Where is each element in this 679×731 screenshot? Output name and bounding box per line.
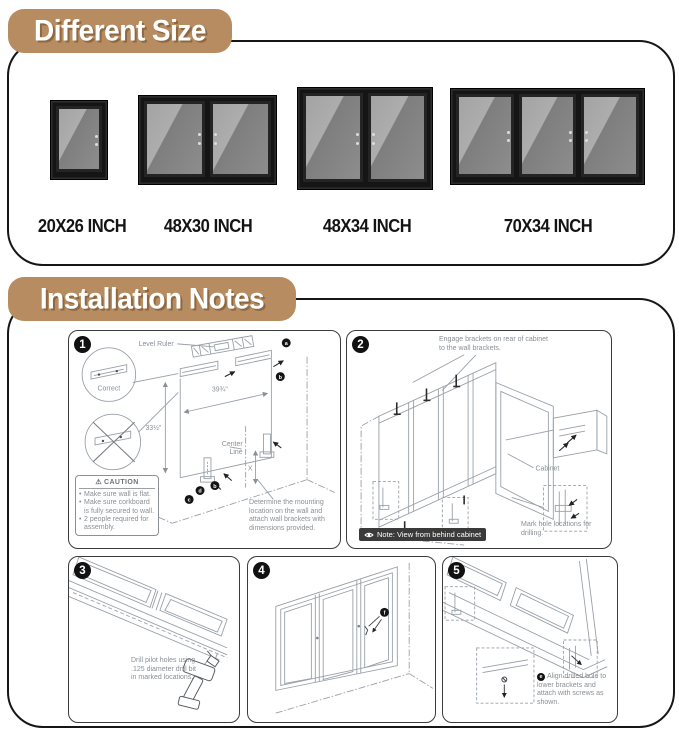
size-label-70x34: 70X34 INCH	[482, 216, 614, 240]
cabinet-door	[56, 106, 102, 172]
cabinet-door	[581, 94, 639, 177]
different-size-title-badge: Different Size	[8, 9, 232, 53]
center-line-label-1: Center	[222, 441, 243, 448]
svg-text:d: d	[198, 489, 201, 495]
size-label-48x34: 48X34 INCH	[302, 216, 432, 240]
caution-item: Make sure corkboard is fully secured to …	[79, 499, 155, 516]
x-dimension: X	[248, 466, 253, 473]
cabinet-door	[368, 93, 428, 182]
product-image-48x34	[297, 87, 433, 190]
cabinet-door	[210, 101, 271, 177]
step1-note-text: Determine the mounting location on the w…	[249, 499, 335, 533]
step4-number-badge: 4	[253, 562, 270, 579]
step2-note-badge: Note: View from behind cabinet	[359, 528, 486, 541]
product-image-70x34	[450, 88, 645, 185]
step3-number-badge: 3	[74, 562, 91, 579]
product-image-48x30	[138, 95, 277, 185]
correct-label: Correct	[98, 385, 121, 392]
installation-notes-title: Installation Notes	[40, 282, 264, 316]
caution-item: 2 people required for assembly.	[79, 516, 155, 533]
step2-engage-text: Engage brackets on rear of cabinet to th…	[439, 336, 553, 353]
caution-box: ⚠ CAUTION Make sure wall is flat. Make s…	[75, 475, 159, 536]
step2-number-badge: 2	[352, 336, 369, 353]
step1-panel: 1	[68, 330, 341, 549]
cabinet-door	[519, 94, 577, 177]
step2-mark-text: Mark hole locations for drilling.	[521, 521, 603, 538]
eye-icon	[364, 531, 374, 539]
cabinet-door	[144, 101, 205, 177]
cabinet-door	[303, 93, 363, 182]
step3-text: Drill pilot holes using .125 diameter dr…	[131, 657, 201, 683]
step5-panel: 5	[442, 556, 618, 723]
product-infographic: Different Size	[0, 0, 679, 731]
step5-marker: e	[537, 673, 545, 681]
step3-diagram	[69, 557, 239, 722]
height-dimension: 33½"	[145, 424, 161, 432]
step3-panel: 3 Dri	[68, 556, 240, 723]
step4-marker: f	[384, 611, 386, 617]
width-dimension: 39¾"	[212, 386, 228, 393]
size-label-20x26: 20X26 INCH	[22, 216, 142, 240]
svg-text:c: c	[188, 498, 191, 504]
step5-text: eAlign drilled hole to lower brackets an…	[537, 673, 615, 707]
step5-number-badge: 5	[448, 562, 465, 579]
step2-diagram: Cabinet	[347, 331, 611, 548]
center-line-label-2: Line	[230, 449, 243, 456]
installation-notes-title-badge: Installation Notes	[8, 277, 296, 321]
level-ruler-label: Level Ruler	[139, 341, 175, 348]
product-image-20x26	[50, 100, 108, 180]
cabinet-label: Cabinet	[535, 466, 559, 473]
cabinet-door	[456, 94, 514, 177]
step2-panel: 2	[346, 330, 612, 549]
different-size-title: Different Size	[34, 14, 206, 48]
caution-title: ⚠ CAUTION	[79, 478, 155, 489]
caution-icon: ⚠	[95, 478, 102, 486]
step4-panel: 4	[247, 556, 436, 723]
size-label-48x30: 48X30 INCH	[148, 216, 268, 240]
step4-diagram: f	[248, 557, 435, 722]
caution-item: Make sure wall is flat.	[79, 491, 155, 499]
step1-number-badge: 1	[74, 336, 91, 353]
